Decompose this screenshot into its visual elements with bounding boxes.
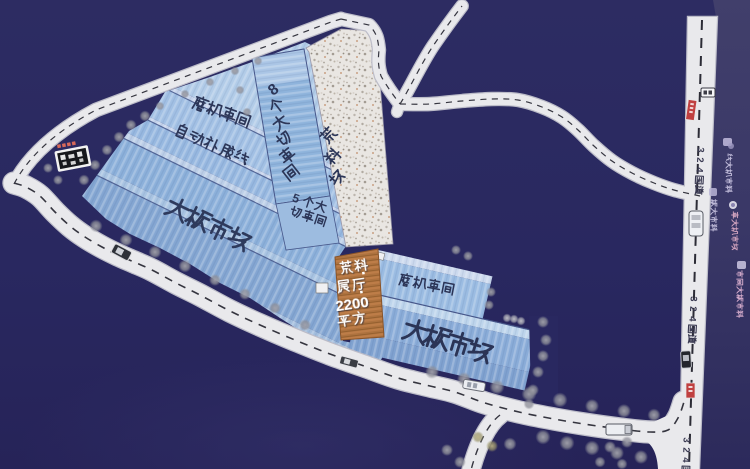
svg-text:2: 2	[680, 447, 691, 453]
svg-text:3: 3	[680, 437, 691, 443]
svg-text:3: 3	[694, 147, 705, 153]
svg-text:3: 3	[687, 296, 698, 302]
svg-text:2: 2	[694, 157, 705, 163]
svg-text:2: 2	[687, 306, 698, 312]
